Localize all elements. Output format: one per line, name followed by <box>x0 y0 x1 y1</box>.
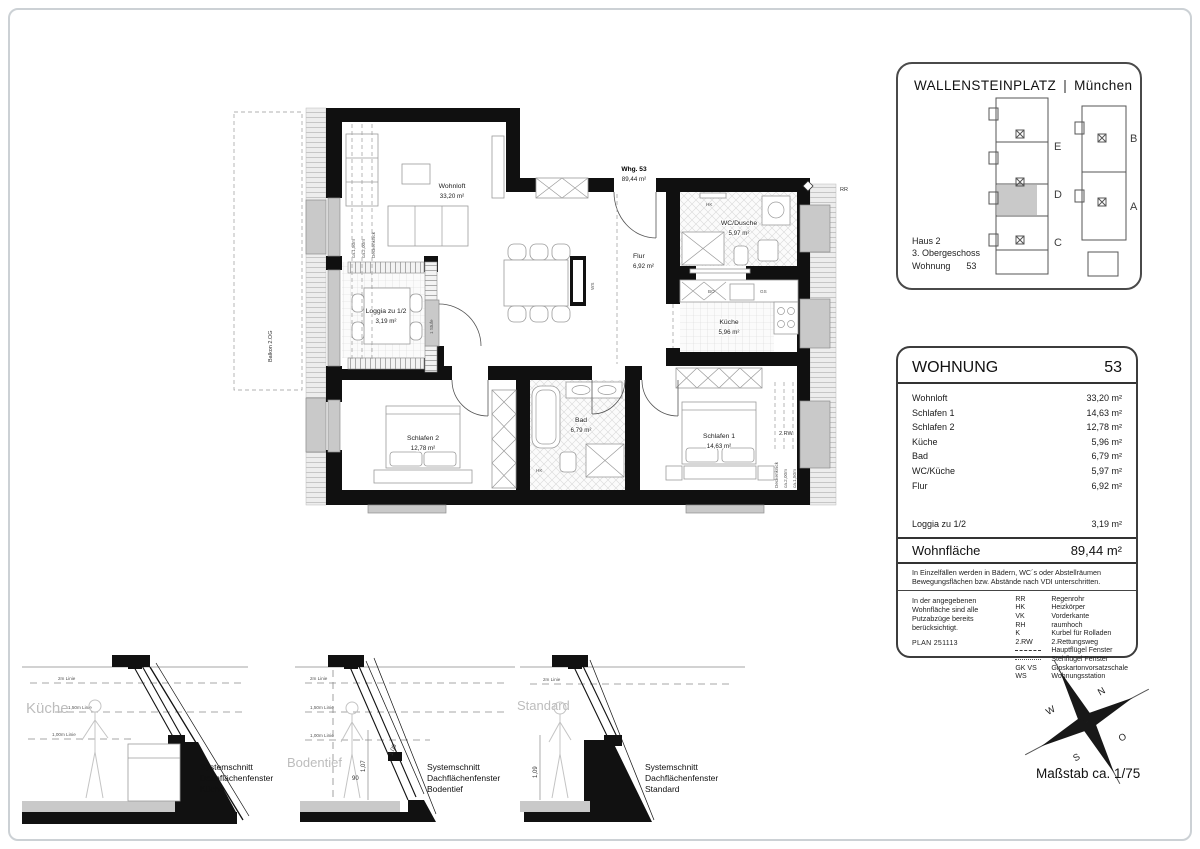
schlafen1-furniture <box>642 368 774 480</box>
svg-text:12,78 m²: 12,78 m² <box>411 445 435 452</box>
section-caption-1: Systemschnitt Dachflächenfenster Küche <box>200 762 330 795</box>
plan-sheet: Balkon 2.OG <box>0 0 1200 849</box>
double-washbasin <box>566 382 622 398</box>
section-room-label-kueche: Küche <box>26 700 69 717</box>
putz-note: In der angegebenen Wohnfläche sind alle … <box>898 591 1003 682</box>
wardrobe-1 <box>676 368 762 388</box>
schlafen2-label: Schlafen 2 <box>407 435 439 442</box>
hall-wardrobe <box>536 178 588 198</box>
floor-plan: Balkon 2.OG <box>234 108 848 513</box>
sofa-2 <box>388 206 468 246</box>
section-standard: 2m Linie 1,09 <box>520 655 745 822</box>
svg-text:14,63 m²: 14,63 m² <box>707 443 731 450</box>
bo-label: BO <box>708 289 715 294</box>
wohnloft-label: Wohnloft <box>439 183 466 190</box>
title-separator: | <box>1063 78 1067 93</box>
svg-text:1,50m Linie: 1,50m Linie <box>310 705 334 710</box>
kitchen-sink <box>730 284 754 300</box>
schlafen1-door-swing <box>642 380 678 416</box>
project-city: München <box>1074 78 1132 93</box>
floor-line: 3. Obergeschoss <box>912 247 980 260</box>
svg-text:2m Linie: 2m Linie <box>310 676 328 681</box>
svg-text:1,00m Linie: 1,00m Linie <box>310 733 334 738</box>
svg-text:90: 90 <box>352 776 359 782</box>
unit-e: E <box>1054 141 1061 153</box>
balkon-label: Balkon 2.OG <box>268 331 274 363</box>
loggia-row: Loggia zu 1/23,19 m² <box>912 517 1122 532</box>
plan-number: PLAN 251113 <box>912 640 958 647</box>
dormer-window-left-bottom <box>306 398 326 452</box>
toilet-bad <box>560 452 576 472</box>
wc-dusche-label: WC/Dusche <box>721 220 757 227</box>
key-plan: E D C B A <box>986 94 1146 279</box>
schlafen2-furniture <box>374 380 516 488</box>
compass-o: O <box>1117 731 1129 744</box>
wohnloft-furniture <box>346 134 504 246</box>
table-row: Flur6,92 m² <box>912 479 1122 494</box>
coffee-table <box>402 164 430 184</box>
legend-row: RHraumhoch <box>1015 622 1128 631</box>
dashed-line-icon <box>1015 650 1041 652</box>
legend-row: VKVorderkante <box>1015 613 1128 622</box>
svg-text:89,44 m²: 89,44 m² <box>622 176 646 183</box>
compass-n: N <box>1096 685 1108 698</box>
loggia-door-swing <box>439 304 481 346</box>
wardrobe-2 <box>492 390 516 488</box>
table-row: WC/Küche5,97 m² <box>912 464 1122 479</box>
svg-text:2m Linie: 2m Linie <box>58 676 76 681</box>
scale-label: Maßstab ca. 1/75 <box>1036 766 1140 781</box>
section-caption-3: Systemschnitt Dachflächenfenster Standar… <box>645 762 775 795</box>
svg-text:5,96 m²: 5,96 m² <box>719 329 740 336</box>
balcony-outline: Balkon 2.OG <box>234 112 302 390</box>
cooktop <box>774 302 798 334</box>
deckenknick-left: Deckenknick <box>371 231 376 258</box>
total-area-row: Wohnfläche 89,44 m² <box>898 539 1136 562</box>
svg-text:6,92 m²: 6,92 m² <box>633 263 654 270</box>
legend-row: WSWohnungsstation <box>1015 673 1128 682</box>
legend-row: RRRegenrohr <box>1015 596 1128 605</box>
svg-text:33,20 m²: 33,20 m² <box>440 193 464 200</box>
dormer-window-left-top <box>306 200 326 254</box>
haus-line: Haus 2 <box>912 235 980 248</box>
table-row: Schlafen 212,78 m² <box>912 420 1122 435</box>
unit-c: C <box>1054 237 1062 249</box>
legend-row: 2.RW2.Rettungsweg <box>1015 639 1128 648</box>
legend-row: HKHeizkörper <box>1015 604 1128 613</box>
hk-label-bad: HK <box>536 468 543 473</box>
legend-row-stehfluegel: Stehflügel Fenster <box>1015 656 1128 665</box>
wohnung-line: Wohnung53 <box>912 260 980 273</box>
ca200-right: ca.2,00m <box>783 469 788 488</box>
hk-label-wc: HK <box>706 202 713 207</box>
table-header: WOHNUNG 53 <box>898 348 1136 382</box>
unit-identification: Haus 2 3. Obergeschoss Wohnung53 <box>912 235 980 273</box>
sideboard <box>492 136 504 198</box>
legend-row-hauptfluegel: Hauptflügel Fenster <box>1015 647 1128 656</box>
schlafen1-label: Schlafen 1 <box>703 433 735 440</box>
loggia-window-top <box>348 262 424 273</box>
flur-label: Flur <box>633 253 645 260</box>
svg-text:6,79 m²: 6,79 m² <box>571 427 592 434</box>
bad-label: Bad <box>575 417 587 424</box>
section-caption-2: Systemschnitt Dachflächenfenster Bodenti… <box>427 762 557 795</box>
washer <box>762 196 790 225</box>
highlighted-unit-d <box>997 185 1037 215</box>
project-name: WALLENSTEINPLATZ <box>914 78 1056 93</box>
compass-w: W <box>1044 704 1057 718</box>
ca150-right: ca.1,50m <box>792 469 797 488</box>
table-header-label: WOHNUNG <box>912 359 998 377</box>
loggia-window-bottom <box>348 358 424 369</box>
dotted-line-icon <box>1015 659 1041 661</box>
table-header-number: 53 <box>1104 359 1122 377</box>
rr-label: RR <box>840 187 848 193</box>
compass-s: S <box>1071 751 1082 764</box>
dining-set <box>504 244 570 322</box>
whg-label: Whg. 53 <box>621 166 647 173</box>
svg-text:1,00m Linie: 1,00m Linie <box>52 732 76 737</box>
legend-row: GK VSGipskartonvorsatzschale <box>1015 665 1128 674</box>
ca150-left: ca.1,50m <box>351 239 356 258</box>
loggia-glazing-upper <box>425 262 437 300</box>
table-row: Wohnloft33,20 m² <box>912 391 1122 406</box>
svg-text:2m Linie: 2m Linie <box>543 677 561 682</box>
vdi-note: In Einzelfällen werden in Bädern, WC´s o… <box>898 564 1136 590</box>
table-row: Schlafen 114,63 m² <box>912 406 1122 421</box>
person-figure-2 <box>341 702 363 798</box>
table-row: Küche5,96 m² <box>912 435 1122 450</box>
gs-label: GS <box>760 289 767 294</box>
abbreviation-legend: RRRegenrohr HKHeizkörper VKVorderkante R… <box>1003 591 1136 682</box>
legend-row: KKurbel für Rolladen <box>1015 630 1128 639</box>
ws-label: WS <box>590 283 595 290</box>
section-kueche: 2m Linie 1,50m Linie 1,00m Linie <box>22 655 249 824</box>
loggia-label: Loggia zu 1/2 <box>366 308 407 315</box>
sliding-door <box>690 269 750 273</box>
entrance-door <box>614 192 656 238</box>
svg-text:3,19 m²: 3,19 m² <box>376 318 397 325</box>
room-area-list: Wohnloft33,20 m² Schlafen 114,63 m² Schl… <box>898 384 1136 532</box>
unit-a: A <box>1130 201 1138 213</box>
project-title: WALLENSTEINPLATZ|München <box>914 78 1132 93</box>
unit-b: B <box>1130 133 1137 145</box>
svg-text:1,07: 1,07 <box>361 760 367 772</box>
kueche-label: Küche <box>719 319 738 326</box>
stufe-label: 1 Stufe <box>429 319 434 334</box>
person-figure-1 <box>82 700 108 798</box>
deckenknick-right: Deckenknick <box>774 461 779 488</box>
table-row: Bad6,79 m² <box>912 449 1122 464</box>
washbasin <box>758 240 778 261</box>
unit-d: D <box>1054 189 1062 201</box>
loggia-table <box>364 288 410 344</box>
section-room-label-standard: Standard <box>517 698 570 713</box>
svg-text:5,97 m²: 5,97 m² <box>729 230 750 237</box>
apartment-data-table: WOHNUNG 53 Wohnloft33,20 m² Schlafen 114… <box>896 346 1138 658</box>
title-block: WALLENSTEINPLATZ|München E D C B <box>896 62 1142 290</box>
rw2-label: 2.RW <box>779 431 793 437</box>
loggia-glazing-lower <box>425 346 437 372</box>
section-bodentief: 2m Linie 1,50m Linie 1,00m Linie 1,07 90… <box>295 655 515 822</box>
toilet <box>734 246 748 265</box>
ca200-left: ca.2,00m <box>361 239 366 258</box>
wohnungsstation: WS <box>570 256 595 306</box>
dining-table <box>504 260 568 306</box>
